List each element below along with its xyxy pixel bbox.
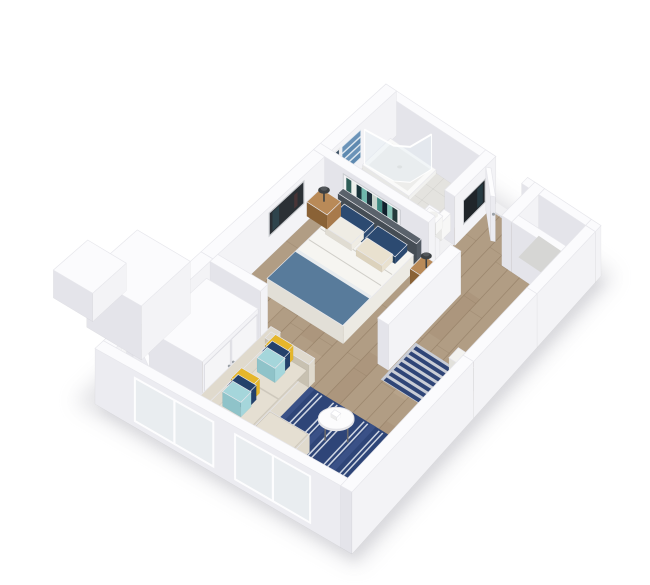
floorplan-3d-render: [0, 0, 650, 585]
floorplan-svg: [0, 0, 650, 585]
front-door-leaf: [490, 196, 495, 242]
door-handle-icon: [492, 213, 495, 216]
